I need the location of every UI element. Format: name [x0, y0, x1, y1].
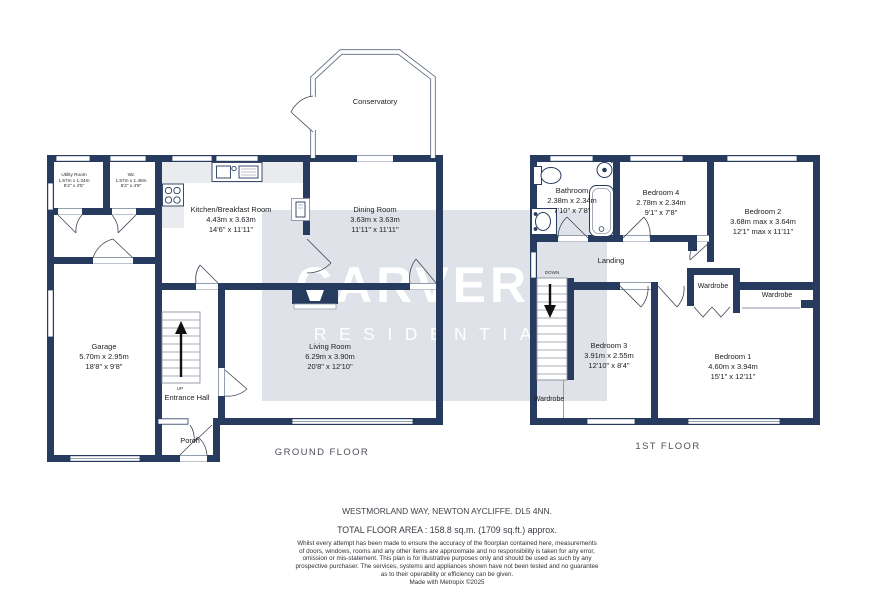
room-name: Bathroom — [547, 186, 597, 196]
room-dim-metric: 3.63m x 3.63m — [350, 215, 400, 225]
room-label-dining: Dining Room 3.63m x 3.63m 11'11" x 11'11… — [350, 205, 400, 235]
disclaimer-line: Whilst every attempt has been made to en… — [295, 540, 598, 548]
room-label-bedroom3: Bedroom 3 3.91m x 2.55m 12'10" x 8'4" — [584, 341, 634, 371]
disclaimer-line: omission or mis-statement. This plan is … — [295, 555, 598, 563]
room-dim-imperial: 7'10" x 7'8" — [547, 206, 597, 216]
room-label-porch: Porch — [180, 436, 200, 446]
room-label-bedroom4: Bedroom 4 2.78m x 2.34m 9'1" x 7'8" — [636, 188, 686, 218]
room-name: Porch — [180, 436, 200, 446]
room-dim-metric: 3.91m x 2.55m — [584, 351, 634, 361]
floorplan-graphic: CARVER RESIDENTIAL — [0, 0, 870, 612]
room-dim-imperial: 20'8" x 12'10" — [305, 362, 355, 372]
room-dim-metric: 2.78m x 2.34m — [636, 198, 686, 208]
room-dim-imperial: 15'1" x 12'11" — [708, 372, 758, 382]
room-name: Living Room — [305, 342, 355, 352]
room-name: Entrance Hall — [164, 393, 209, 403]
room-dim-imperial: 18'8" x 9'8" — [79, 362, 129, 372]
room-dim-imperial: 12'1" max x 11'11" — [730, 227, 796, 237]
room-label-garage: Garage 5.70m x 2.95m 18'8" x 9'8" — [79, 342, 129, 372]
room-label-entrance-hall: Entrance Hall — [164, 393, 209, 403]
room-dim-metric: 4.60m x 3.94m — [708, 362, 758, 372]
wardrobe-label-bed2side: Wardrobe — [698, 283, 728, 290]
room-name: Dining Room — [350, 205, 400, 215]
room-dim-metric: 5.70m x 2.95m — [79, 352, 129, 362]
room-name: Conservatory — [353, 97, 398, 107]
room-label-kitchen: Kitchen/Breakfast Room 4.43m x 3.63m 14'… — [191, 205, 272, 235]
stairs-up-label: UP — [177, 386, 183, 391]
fireplace-symbol — [292, 290, 338, 309]
ground-floor-label: GROUND FLOOR — [275, 447, 369, 458]
room-label-landing: Landing — [598, 256, 625, 266]
staircase-up — [162, 312, 200, 383]
room-label-living: Living Room 6.29m x 3.90m 20'8" x 12'10" — [305, 342, 355, 372]
room-dim-metric: 6.29m x 3.90m — [305, 352, 355, 362]
room-dim-imperial: 12'10" x 8'4" — [584, 361, 634, 371]
room-dim-metric: 3.68m max x 3.64m — [730, 217, 796, 227]
kitchen-sink-symbol — [212, 163, 262, 182]
room-dim-metric: 2.38m x 2.34m — [547, 196, 597, 206]
boiler-symbol — [292, 199, 310, 221]
room-name: Kitchen/Breakfast Room — [191, 205, 272, 215]
room-name: Garage — [79, 342, 129, 352]
room-name: Utility Room — [58, 172, 89, 178]
disclaimer-line: prospective purchaser. The services, sys… — [295, 563, 598, 571]
total-floor-area: TOTAL FLOOR AREA : 158.8 sq.m. (1709 sq.… — [337, 525, 557, 535]
floorplan-page: CARVER RESIDENTIAL — [0, 0, 870, 612]
room-name: Bedroom 3 — [584, 341, 634, 351]
room-dim-imperial: 5'2" x 4'9" — [115, 183, 146, 189]
room-name: Landing — [598, 256, 625, 266]
wardrobe-label-bed1side: Wardrobe — [762, 292, 792, 299]
room-label-bathroom: Bathroom 2.38m x 2.34m 7'10" x 7'8" — [547, 186, 597, 216]
metropix-credit: Made with Metropix ©2025 — [295, 579, 598, 587]
room-label-wc: Wc 1.57m x 1.45m 5'2" x 4'9" — [115, 172, 146, 189]
staircase-down — [537, 278, 567, 380]
room-dim-imperial: 14'6" x 11'11" — [191, 225, 272, 235]
toilet-symbol — [534, 167, 562, 185]
property-address: WESTMORLAND WAY, NEWTON AYCLIFFE. DL5 4N… — [342, 506, 552, 516]
conservatory-door-gap — [310, 97, 318, 130]
disclaimer-line: as to their operability or efficiency ca… — [295, 571, 598, 579]
room-label-bedroom2: Bedroom 2 3.68m max x 3.64m 12'1" max x … — [730, 207, 796, 237]
room-label-conservatory: Conservatory — [353, 97, 398, 107]
room-label-bedroom1: Bedroom 1 4.60m x 3.94m 15'1" x 12'11" — [708, 352, 758, 382]
wardrobe-label-stairs: Wardrobe — [534, 396, 564, 403]
room-dim-metric: 4.43m x 3.63m — [191, 215, 272, 225]
room-dim-imperial: 9'1" x 7'8" — [636, 208, 686, 218]
room-label-utility: Utility Room 1.57m x 1.34m 5'2" x 4'5" — [58, 172, 89, 189]
hob-symbol — [163, 184, 184, 206]
room-name: Bedroom 4 — [636, 188, 686, 198]
stairs-down-label: DOWN — [545, 270, 560, 275]
room-name: Bedroom 2 — [730, 207, 796, 217]
disclaimer-line: of doors, windows, rooms and any other i… — [295, 548, 598, 556]
room-dim-imperial: 11'11" x 11'11" — [350, 225, 400, 235]
room-name: Bedroom 1 — [708, 352, 758, 362]
first-floor-label: 1ST FLOOR — [635, 441, 700, 452]
disclaimer-text: Whilst every attempt has been made to en… — [295, 540, 598, 586]
room-dim-imperial: 5'2" x 4'5" — [58, 183, 89, 189]
